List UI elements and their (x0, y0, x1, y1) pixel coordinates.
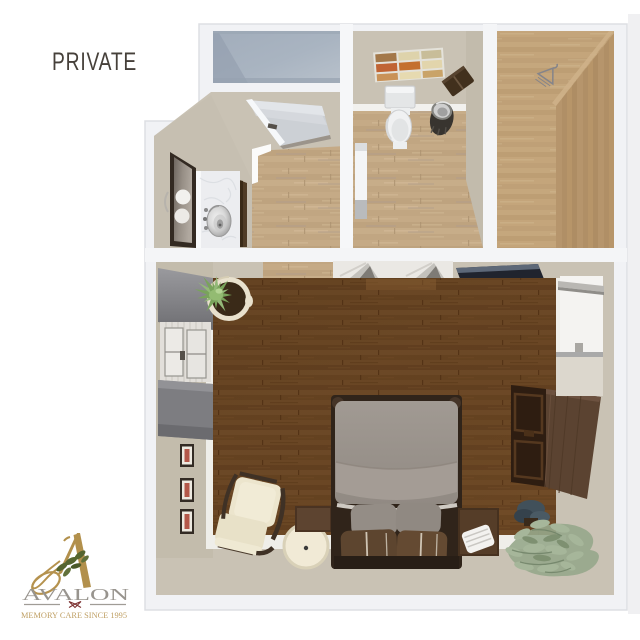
svg-text:MEMORY CARE SINCE 1995: MEMORY CARE SINCE 1995 (21, 610, 127, 620)
svg-text:AVALON: AVALON (22, 585, 129, 604)
svg-text:PRIVATE: PRIVATE (52, 48, 137, 76)
